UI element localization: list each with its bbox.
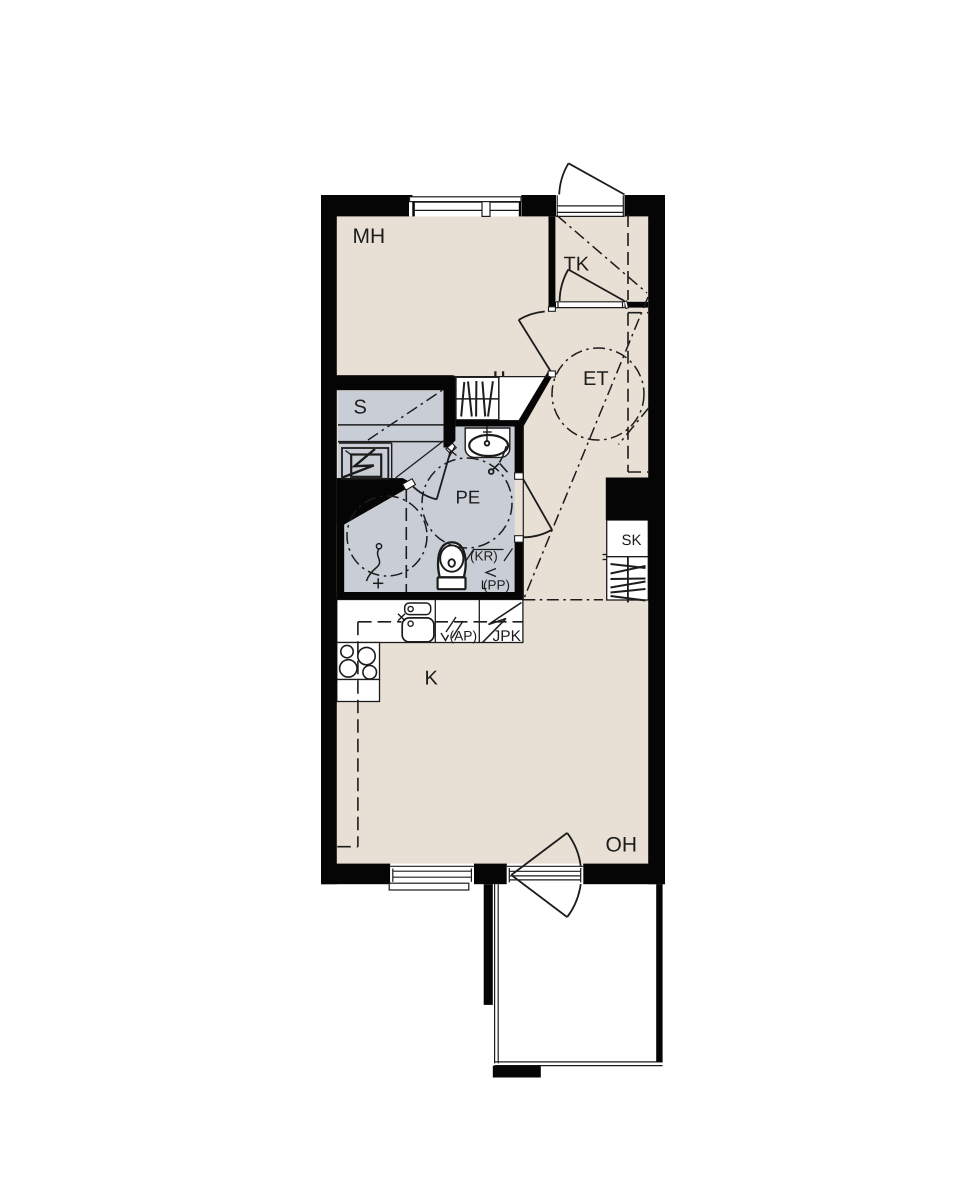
svg-text:(KR): (KR) — [470, 549, 498, 564]
svg-text:SK: SK — [622, 532, 642, 549]
svg-text:(PP): (PP) — [483, 578, 510, 593]
svg-text:(AP): (AP) — [450, 629, 478, 644]
svg-text:OH: OH — [606, 833, 638, 856]
svg-text:S: S — [354, 396, 367, 418]
svg-text:PE: PE — [456, 486, 481, 507]
svg-text:TK: TK — [564, 254, 590, 276]
svg-text:K: K — [425, 668, 439, 690]
svg-text:MH: MH — [353, 225, 386, 248]
svg-text:JPK: JPK — [493, 628, 522, 645]
svg-text:ET: ET — [583, 368, 609, 390]
